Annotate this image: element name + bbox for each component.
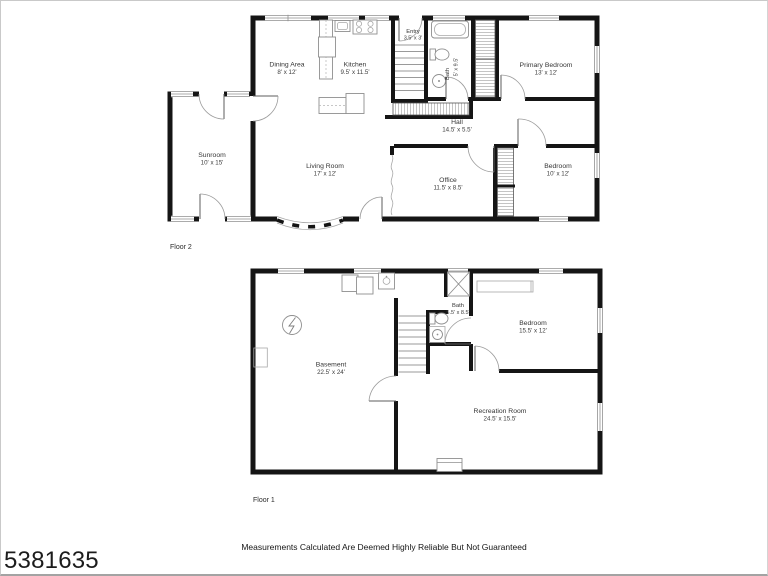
hearth — [437, 459, 462, 472]
room-label-bedroom2: Bedroom — [544, 163, 572, 170]
window — [171, 216, 194, 222]
floorplan-image: Dining Area 8' x 12' Kitchen 9.5' x 11.5… — [0, 0, 768, 576]
toilet — [430, 313, 449, 324]
floor2-plan: Dining Area 8' x 12' Kitchen 9.5' x 11.5… — [170, 15, 600, 251]
room-dims-sunroom: 10' x 15' — [201, 160, 224, 167]
shower — [448, 272, 470, 296]
office-opening-squiggle — [391, 155, 393, 215]
floor1-label: Floor 1 — [253, 497, 275, 504]
window — [265, 15, 311, 21]
disclaimer-text: Measurements Calculated Are Deemed Highl… — [1, 542, 767, 552]
window — [354, 268, 381, 274]
mls-number: 5381635 — [4, 549, 99, 573]
window — [171, 91, 193, 97]
toilet — [430, 49, 449, 60]
window — [597, 308, 603, 333]
window — [433, 15, 465, 21]
room-dims-bedroom1: 15.5' x 12' — [519, 328, 547, 335]
floor1-plan: Basement 22.5' x 24' Bath 5.5' x 8.5' Be… — [253, 268, 603, 504]
floor1-interior-walls — [396, 271, 600, 472]
window — [539, 268, 563, 274]
dryer — [357, 277, 374, 294]
bedroom1-door — [475, 346, 499, 371]
bath1-door — [445, 318, 471, 344]
window — [539, 216, 568, 222]
floor2-label: Floor 2 — [170, 244, 192, 251]
room-label-office: Office — [439, 177, 457, 184]
understair-storage — [393, 103, 469, 115]
room-label-kitchen: Kitchen — [344, 62, 367, 69]
stairs-down — [399, 316, 427, 372]
bathtub — [432, 21, 469, 38]
room-dims-entry: 3.5' x 3' — [404, 36, 423, 42]
sunroom-exterior-door-bottom — [199, 194, 225, 222]
window — [227, 216, 251, 222]
window — [227, 91, 249, 97]
kitchen-counter — [319, 20, 336, 79]
bay-window — [277, 215, 343, 229]
office-door — [468, 146, 494, 172]
stairs-up — [395, 45, 424, 91]
window — [529, 15, 559, 21]
sunroom-exterior-door-top — [199, 91, 224, 119]
room-label-hall: Hall — [451, 119, 463, 126]
kitchen-sink — [335, 21, 350, 32]
electric-panel — [283, 316, 302, 335]
room-dims-kitchen: 9.5' x 11.5' — [340, 69, 369, 76]
window — [597, 403, 603, 431]
room-dims-living: 17' x 12' — [314, 171, 337, 178]
room-dims-hall: 14.5' x 5.5' — [442, 127, 472, 134]
room-label-bath1: Bath — [452, 303, 464, 309]
sink — [433, 75, 446, 88]
room-dims-primary: 13' x 12' — [535, 70, 558, 77]
room-label-recreation: Recreation Room — [474, 408, 527, 415]
basement-rec-door — [369, 376, 396, 401]
room-label-dining: Dining Area — [269, 62, 304, 69]
room-label-bedroom1: Bedroom — [519, 320, 547, 327]
stove — [353, 20, 377, 34]
window — [594, 46, 600, 73]
sunroom-door — [250, 96, 278, 121]
window — [594, 153, 600, 178]
window — [278, 268, 304, 274]
living-room-door — [359, 197, 382, 222]
sink — [430, 327, 446, 343]
kitchen-island — [319, 94, 364, 114]
room-dims-bedroom2: 10' x 12' — [547, 171, 570, 178]
washer — [342, 275, 358, 292]
room-label-entry: Entry — [406, 29, 420, 35]
room-dims-bath1: 5.5' x 8.5' — [446, 310, 469, 316]
bedroom-closet — [498, 148, 514, 216]
room-label-basement: Basement — [316, 362, 347, 369]
room-label-sunroom: Sunroom — [198, 152, 226, 159]
floorplan-canvas: Dining Area 8' x 12' Kitchen 9.5' x 11.5… — [1, 1, 768, 576]
primary-bedroom-door — [501, 75, 525, 99]
room-label-bath2: Bath — [445, 68, 451, 80]
room-dims-recreation: 24.5' x 15.5' — [484, 416, 517, 423]
room-dims-basement: 22.5' x 24' — [317, 369, 345, 376]
bedroom-door — [518, 119, 546, 146]
room-label-living: Living Room — [306, 163, 344, 170]
room-dims-dining: 8' x 12' — [277, 69, 296, 76]
room-dims-office: 11.5' x 8.5' — [433, 185, 462, 192]
room-dims-bath2: 5' x 9.5' — [454, 58, 460, 77]
room-label-primary: Primary Bedroom — [520, 62, 573, 69]
bedroom-shelf — [477, 281, 533, 292]
laundry-sink — [379, 273, 395, 289]
wall-cabinet — [254, 348, 267, 367]
